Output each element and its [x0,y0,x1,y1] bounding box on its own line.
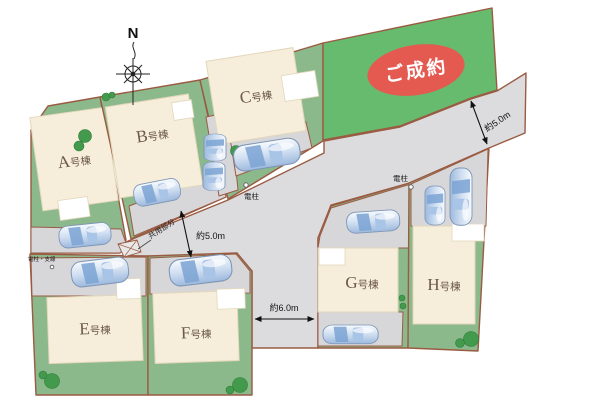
utility-pole-icon [244,183,248,187]
utility-pole-icon [50,265,54,269]
building-g: G号棟 [318,248,398,312]
site-plan-canvas: A号棟 B号棟 C号棟 ご成約 [0,0,600,406]
svg-text:電柱・支線: 電柱・支線 [28,255,56,263]
car [204,134,226,161]
car [323,325,378,344]
lot-g-parcel: G号棟 [318,182,413,348]
car [346,209,400,234]
car [425,186,445,225]
car [450,168,472,225]
compass-north-label: N [128,25,139,42]
utility-pole-icon [409,185,413,189]
site-plan: A号棟 B号棟 C号棟 ご成約 [0,0,600,406]
car [203,162,225,191]
svg-text:電柱: 電柱 [393,173,408,183]
lot-h-parcel: H号棟 [408,148,489,351]
building-f: F号棟 [153,288,247,363]
svg-text:約6.0m: 約6.0m [269,302,298,313]
svg-text:電柱: 電柱 [244,191,259,201]
svg-text:約5.0m: 約5.0m [196,230,225,241]
building-h: H号棟 [413,224,484,324]
